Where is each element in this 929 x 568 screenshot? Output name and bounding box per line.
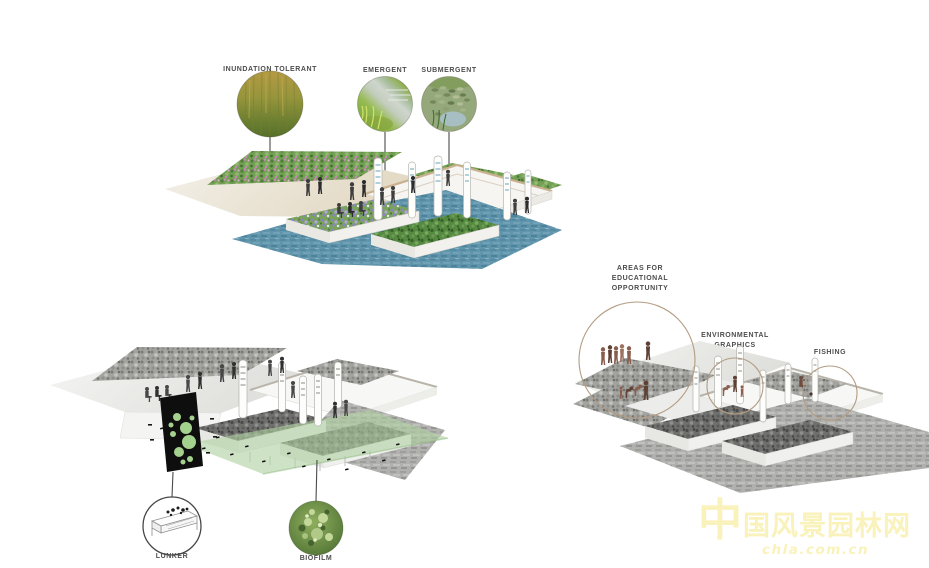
water-habitat-diagram: LUNKER BIOFILM: [40, 340, 450, 568]
lunker-label: LUNKER: [132, 552, 212, 562]
emergent-photo: [357, 77, 413, 133]
planting-types-diagram: INUNDATION TOLERANT EMERGENT SUBMERGENT: [150, 58, 580, 270]
program-areas-illustration: [565, 258, 929, 506]
planting-types-illustration: [150, 58, 580, 270]
submergent-photo: [422, 77, 477, 132]
watermark: 中国风景园林网 chla.com.cn: [698, 498, 911, 558]
inundation-tolerant-photo: [237, 71, 303, 137]
biofilm-photo: [289, 501, 343, 555]
lunker-sketch: [143, 497, 201, 555]
water-habitat-illustration: [40, 340, 450, 568]
biofilm-label: BIOFILM: [276, 554, 356, 564]
poster-canvas: INUNDATION TOLERANT EMERGENT SUBMERGENT: [0, 0, 929, 568]
program-areas-diagram: AREAS FOR EDUCATIONAL OPPORTUNITY ENVIRO…: [565, 258, 929, 506]
